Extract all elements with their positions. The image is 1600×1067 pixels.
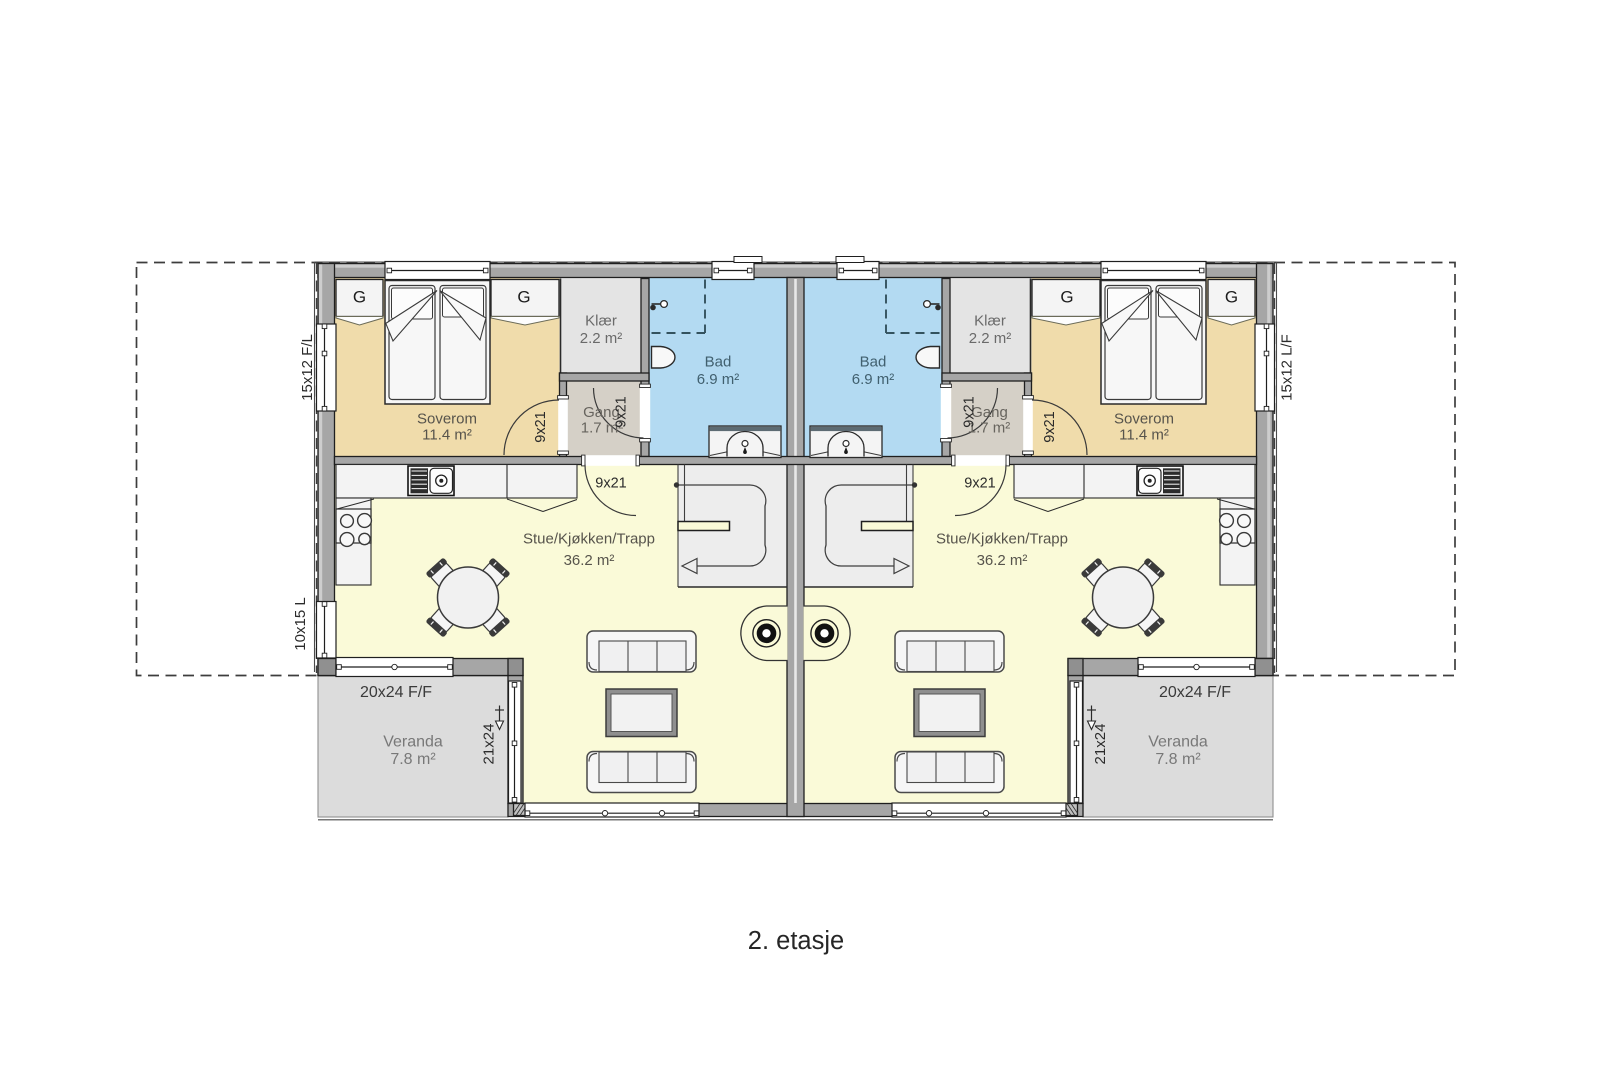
svg-text:15x12 L/F: 15x12 L/F bbox=[1279, 334, 1296, 401]
svg-text:G: G bbox=[353, 288, 366, 307]
svg-text:36.2 m²: 36.2 m² bbox=[564, 552, 615, 569]
svg-text:Soverom: Soverom bbox=[1114, 411, 1174, 428]
svg-text:Klær: Klær bbox=[974, 313, 1006, 330]
svg-text:Bad: Bad bbox=[860, 354, 887, 371]
svg-text:Veranda: Veranda bbox=[1148, 734, 1208, 751]
svg-text:21x24: 21x24 bbox=[481, 724, 498, 765]
svg-text:2.2 m²: 2.2 m² bbox=[969, 330, 1012, 347]
svg-text:36.2 m²: 36.2 m² bbox=[977, 552, 1028, 569]
svg-text:11.4 m²: 11.4 m² bbox=[422, 427, 472, 444]
svg-text:9x21: 9x21 bbox=[614, 396, 630, 427]
svg-text:9x21: 9x21 bbox=[1042, 411, 1058, 442]
svg-text:6.9 m²: 6.9 m² bbox=[697, 371, 740, 388]
svg-text:G: G bbox=[517, 288, 530, 307]
svg-text:7.8 m²: 7.8 m² bbox=[390, 751, 436, 768]
svg-text:G: G bbox=[1060, 288, 1073, 307]
svg-text:2.2 m²: 2.2 m² bbox=[580, 330, 623, 347]
svg-text:10x15 L: 10x15 L bbox=[292, 597, 309, 650]
svg-text:15x12 F/L: 15x12 F/L bbox=[299, 334, 316, 401]
svg-text:9x21: 9x21 bbox=[533, 411, 549, 442]
svg-text:20x24 F/F: 20x24 F/F bbox=[1159, 684, 1231, 701]
svg-text:9x21: 9x21 bbox=[962, 396, 978, 427]
svg-text:Soverom: Soverom bbox=[417, 411, 477, 428]
svg-text:Stue/Kjøkken/Trapp: Stue/Kjøkken/Trapp bbox=[523, 531, 655, 548]
svg-text:Stue/Kjøkken/Trapp: Stue/Kjøkken/Trapp bbox=[936, 531, 1068, 548]
svg-text:Veranda: Veranda bbox=[383, 734, 443, 751]
svg-text:20x24 F/F: 20x24 F/F bbox=[360, 684, 432, 701]
svg-text:7.8 m²: 7.8 m² bbox=[1155, 751, 1201, 768]
svg-text:6.9 m²: 6.9 m² bbox=[852, 371, 895, 388]
svg-text:21x24: 21x24 bbox=[1092, 724, 1109, 765]
svg-text:2. etasje: 2. etasje bbox=[748, 927, 844, 955]
svg-text:9x21: 9x21 bbox=[964, 476, 995, 492]
svg-text:11.4 m²: 11.4 m² bbox=[1119, 427, 1169, 444]
svg-text:Bad: Bad bbox=[705, 354, 732, 371]
svg-text:G: G bbox=[1225, 288, 1238, 307]
svg-text:9x21: 9x21 bbox=[595, 476, 626, 492]
svg-text:Klær: Klær bbox=[585, 313, 617, 330]
